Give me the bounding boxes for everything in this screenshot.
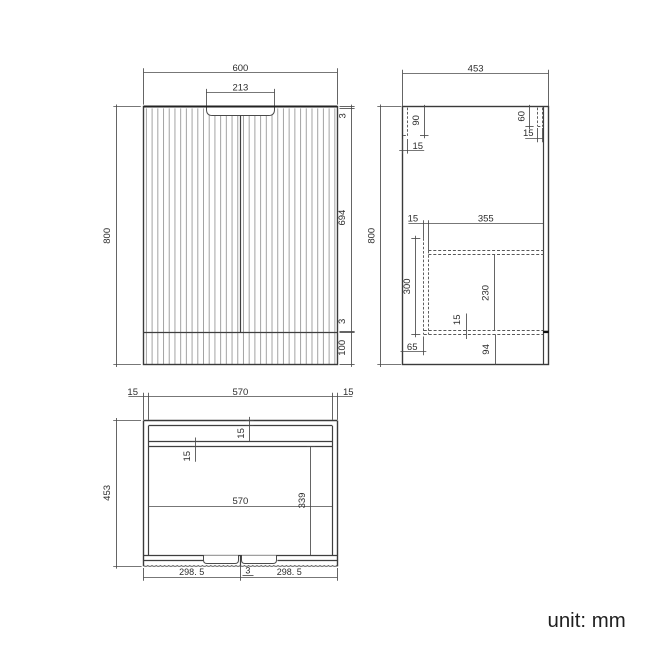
svg-text:15: 15 xyxy=(127,387,138,398)
svg-text:65: 65 xyxy=(407,342,418,353)
svg-text:230: 230 xyxy=(480,285,491,301)
svg-text:3: 3 xyxy=(337,319,348,324)
svg-text:213: 213 xyxy=(232,83,248,94)
svg-text:355: 355 xyxy=(478,213,494,224)
svg-text:339: 339 xyxy=(297,493,308,509)
svg-text:298. 5: 298. 5 xyxy=(277,567,302,577)
svg-text:453: 453 xyxy=(102,485,113,501)
svg-text:60: 60 xyxy=(516,111,527,122)
svg-text:15: 15 xyxy=(343,387,354,398)
svg-text:298. 5: 298. 5 xyxy=(179,567,204,577)
svg-text:15: 15 xyxy=(452,315,463,326)
svg-text:90: 90 xyxy=(411,115,422,126)
svg-text:570: 570 xyxy=(232,496,248,507)
svg-text:15: 15 xyxy=(408,213,419,224)
svg-text:570: 570 xyxy=(232,387,248,398)
svg-text:15: 15 xyxy=(182,451,193,462)
svg-text:694: 694 xyxy=(337,210,348,226)
svg-text:300: 300 xyxy=(402,278,413,294)
svg-text:15: 15 xyxy=(236,428,247,439)
svg-text:100: 100 xyxy=(337,340,348,356)
svg-text:15: 15 xyxy=(413,141,424,152)
svg-text:800: 800 xyxy=(102,228,113,244)
svg-text:94: 94 xyxy=(481,344,492,355)
svg-text:800: 800 xyxy=(367,228,378,244)
svg-text:15: 15 xyxy=(523,128,534,139)
svg-text:600: 600 xyxy=(232,63,248,74)
svg-text:3: 3 xyxy=(337,113,348,118)
svg-text:3: 3 xyxy=(245,566,250,576)
svg-text:unit: mm: unit: mm xyxy=(548,610,626,632)
svg-text:453: 453 xyxy=(468,64,484,75)
